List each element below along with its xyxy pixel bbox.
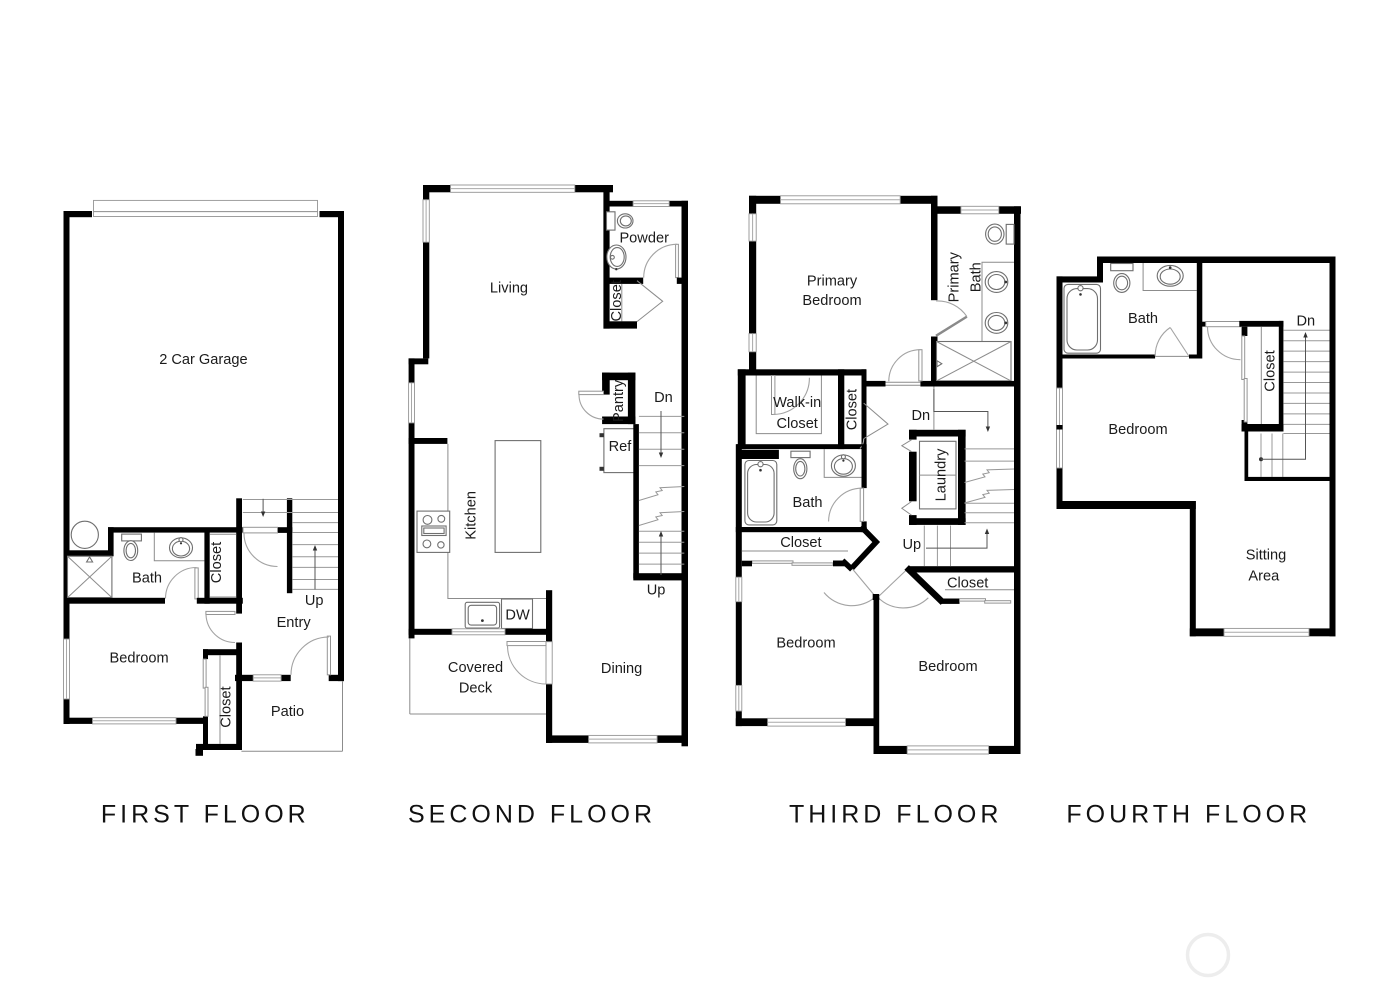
svg-text:Entry: Entry: [277, 615, 312, 631]
svg-text:Sitting: Sitting: [1246, 547, 1287, 563]
svg-text:THIRD FLOOR: THIRD FLOOR: [789, 801, 1002, 829]
svg-text:Closet: Closet: [218, 686, 234, 727]
svg-text:Closet: Closet: [1263, 350, 1279, 391]
svg-text:Living: Living: [490, 280, 528, 296]
svg-text:Closet: Closet: [845, 389, 861, 430]
svg-text:Laundry: Laundry: [934, 448, 950, 501]
svg-text:Dining: Dining: [601, 661, 642, 677]
svg-text:Up: Up: [902, 537, 921, 553]
svg-text:Primary: Primary: [807, 273, 858, 289]
svg-text:Powder: Powder: [619, 230, 669, 246]
svg-text:Closet: Closet: [947, 576, 988, 592]
svg-text:Up: Up: [305, 593, 324, 609]
svg-text:FIRST FLOOR: FIRST FLOOR: [101, 801, 310, 829]
svg-text:Primary: Primary: [947, 251, 963, 302]
svg-text:Pantry: Pantry: [611, 379, 627, 422]
svg-text:Bath: Bath: [1128, 311, 1158, 327]
svg-text:Patio: Patio: [271, 704, 304, 720]
svg-text:Dn: Dn: [1296, 314, 1315, 330]
svg-text:Closet: Closet: [780, 535, 821, 551]
svg-text:Bedroom: Bedroom: [1108, 422, 1167, 438]
svg-text:DW: DW: [505, 607, 530, 623]
svg-text:Up: Up: [647, 583, 666, 599]
svg-text:Closet: Closet: [209, 542, 225, 583]
svg-text:Bedroom: Bedroom: [802, 293, 861, 309]
svg-text:Bedroom: Bedroom: [918, 659, 977, 675]
svg-text:Dn: Dn: [911, 408, 930, 424]
svg-text:Area: Area: [1248, 569, 1280, 585]
svg-text:Deck: Deck: [459, 680, 493, 696]
svg-text:SECOND FLOOR: SECOND FLOOR: [408, 801, 656, 829]
svg-text:Bedroom: Bedroom: [776, 635, 835, 651]
svg-text:Bedroom: Bedroom: [109, 651, 168, 667]
svg-text:Bath: Bath: [792, 495, 822, 511]
svg-text:FOURTH FLOOR: FOURTH FLOOR: [1066, 801, 1311, 829]
svg-text:Bath: Bath: [968, 262, 984, 292]
svg-text:Closet: Closet: [609, 280, 625, 321]
svg-text:Walk-in: Walk-in: [773, 395, 821, 411]
svg-text:2 Car Garage: 2 Car Garage: [159, 352, 247, 368]
svg-text:Closet: Closet: [777, 416, 818, 432]
svg-text:Kitchen: Kitchen: [463, 491, 479, 540]
svg-text:Bath: Bath: [132, 570, 162, 586]
svg-text:Dn: Dn: [654, 390, 673, 406]
svg-text:Ref: Ref: [609, 439, 633, 455]
svg-text:Covered: Covered: [448, 660, 503, 676]
